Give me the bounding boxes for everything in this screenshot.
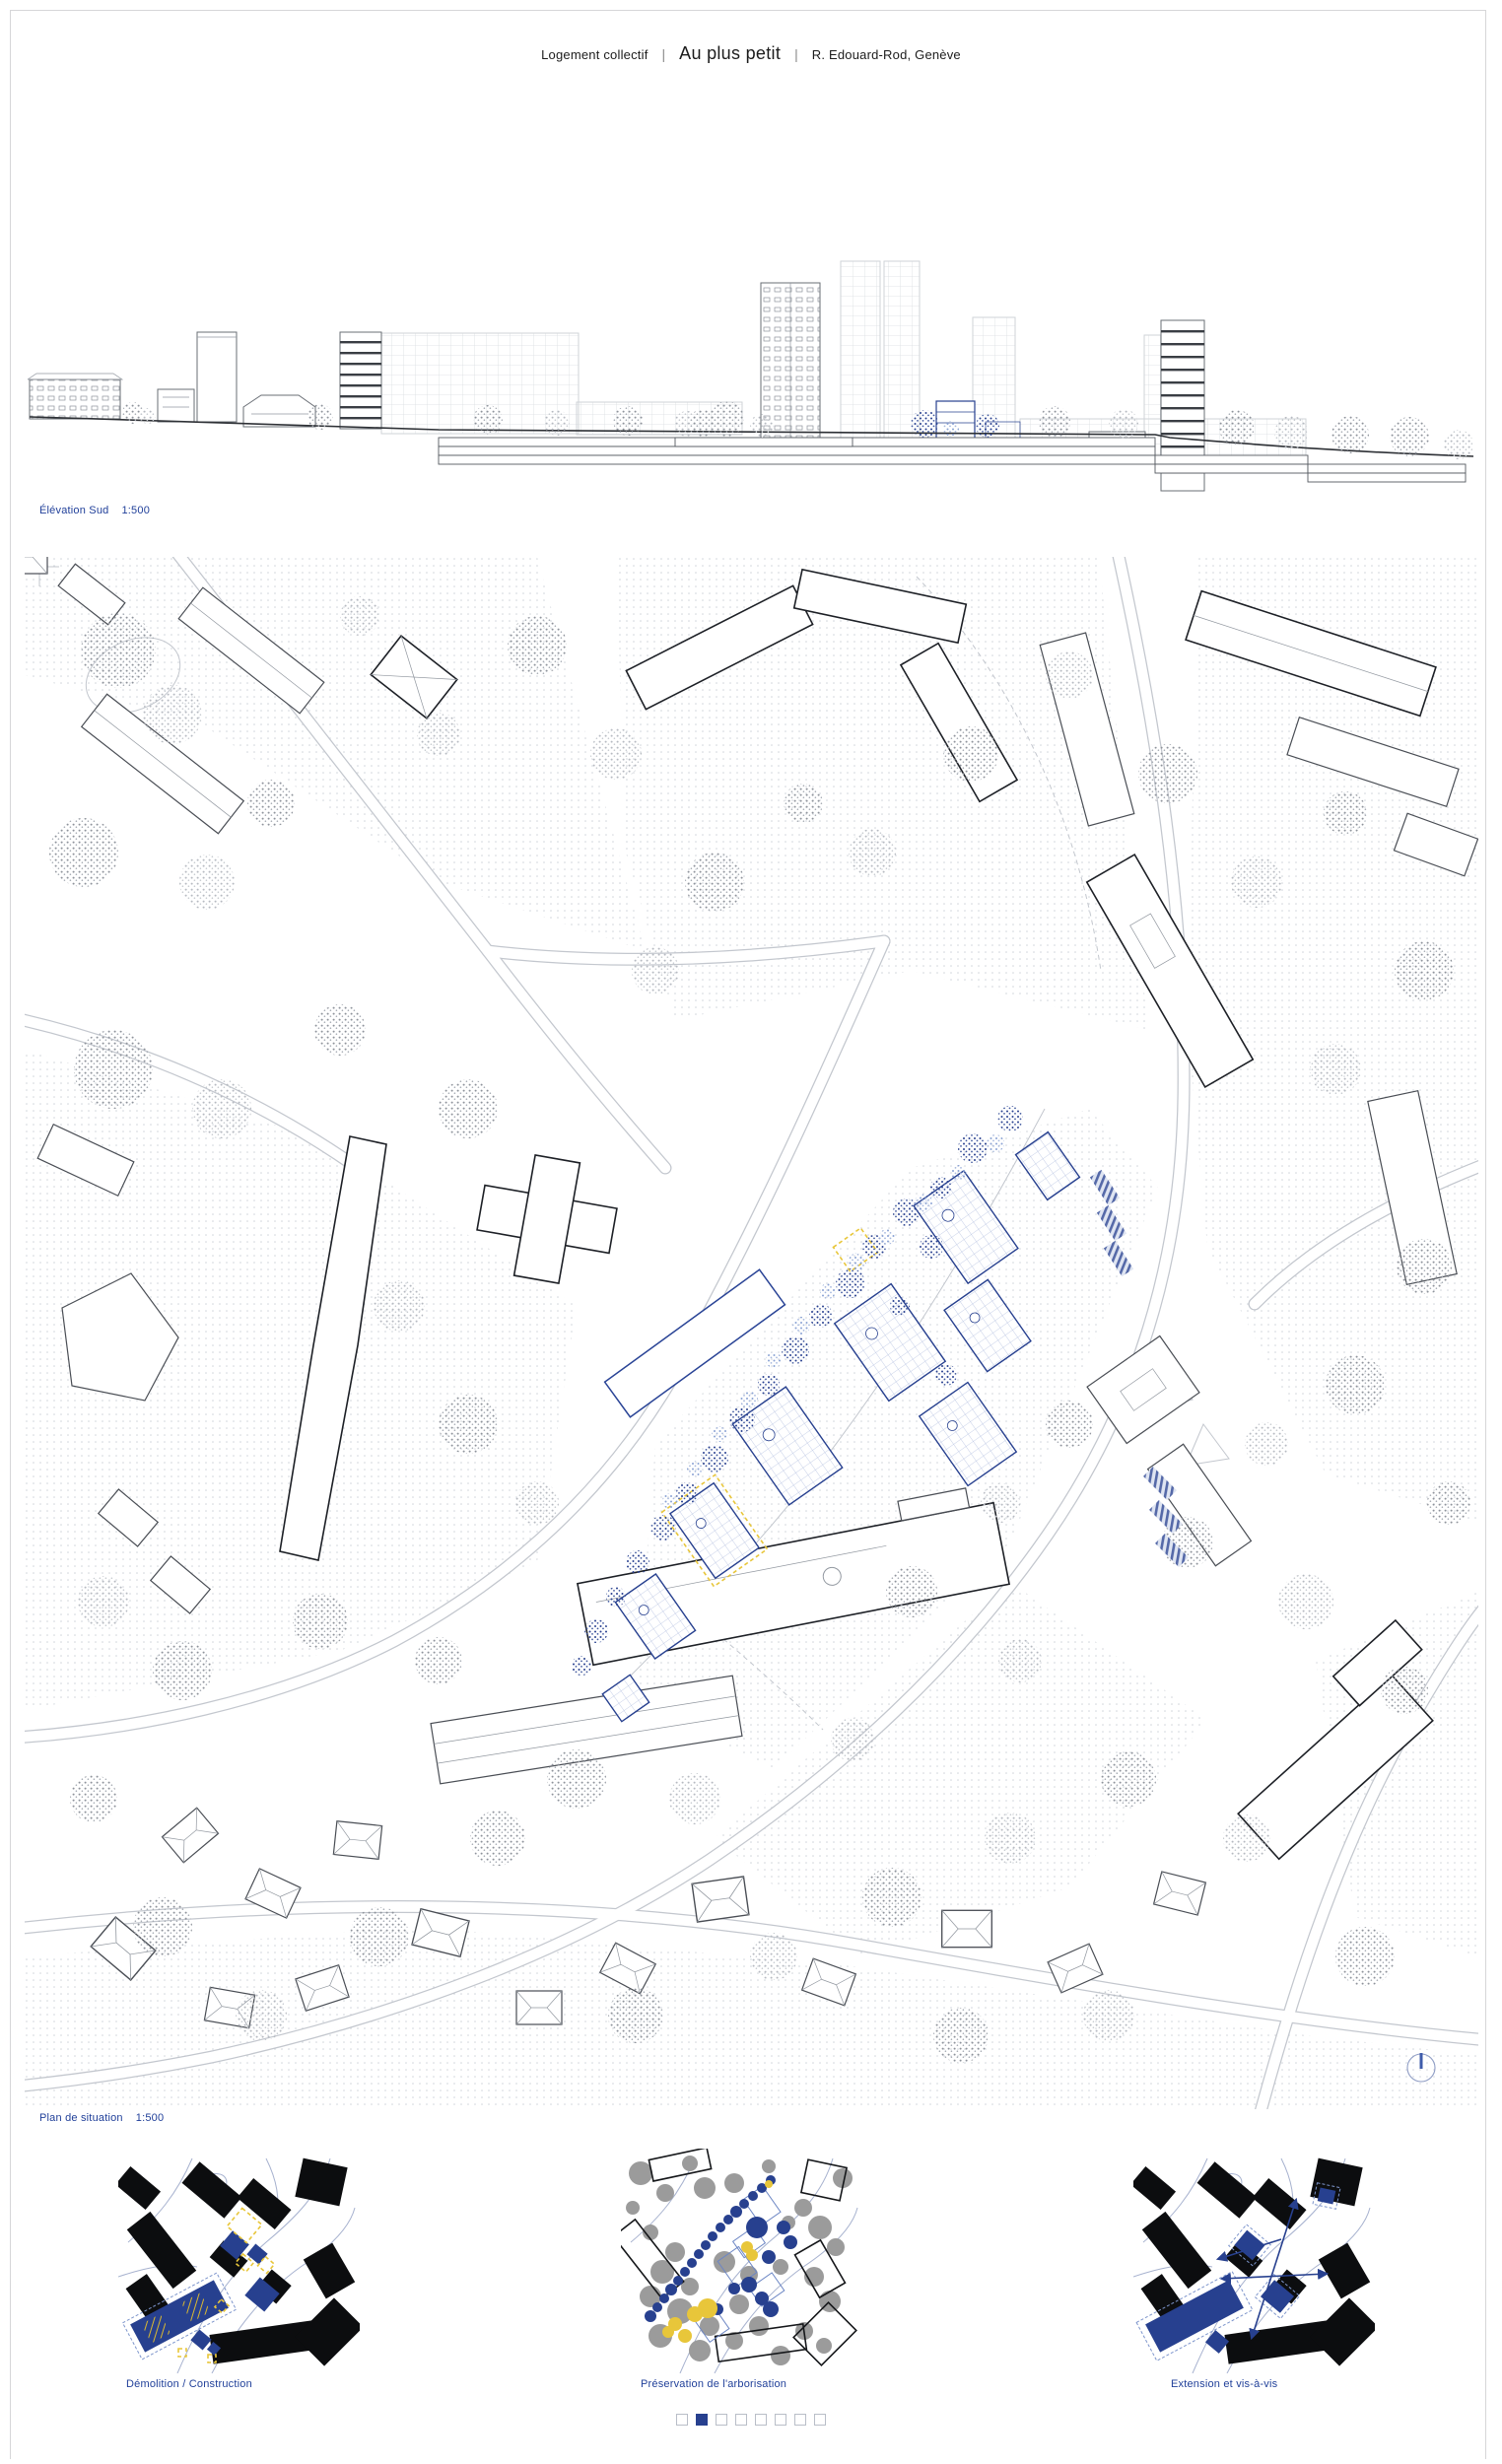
diagram-tree-preservation <box>621 2149 862 2373</box>
title-separator: | <box>794 46 798 62</box>
elevation-drawing <box>25 168 1478 498</box>
page-square-1[interactable] <box>676 2414 688 2426</box>
section-tower-left <box>340 332 381 429</box>
site-plan-label-text: Plan de situation <box>39 2112 123 2124</box>
diagram-demolition-construction <box>118 2149 360 2373</box>
page-square-7[interactable] <box>794 2414 806 2426</box>
site-plan-drawing <box>25 557 1478 2109</box>
elevation-label-text: Élévation Sud <box>39 505 108 516</box>
page-square-2[interactable] <box>696 2414 708 2426</box>
page-square-6[interactable] <box>775 2414 786 2426</box>
title-category: Logement collectif <box>541 47 648 62</box>
diagram3-label: Extension et vis-à-vis <box>1171 2378 1277 2390</box>
diagram1-label: Démolition / Construction <box>126 2378 252 2390</box>
diagram1-label-text: Démolition / Construction <box>126 2378 252 2390</box>
diagram2-existing-trees <box>626 2156 853 2365</box>
diagram3-visavis-arrows <box>1218 2200 1327 2338</box>
board-title: Logement collectif | Au plus petit | R. … <box>0 43 1502 64</box>
site-plan-label: Plan de situation1:500 <box>39 2112 164 2124</box>
site-plan-scale: 1:500 <box>136 2112 165 2124</box>
pagination <box>0 2414 1502 2426</box>
diagram3-label-text: Extension et vis-à-vis <box>1171 2378 1277 2390</box>
elevation-scale: 1:500 <box>121 505 150 516</box>
page-square-5[interactable] <box>755 2414 767 2426</box>
page-square-8[interactable] <box>814 2414 826 2426</box>
diagram-extension-visavis <box>1133 2149 1375 2373</box>
diagram2-label: Préservation de l'arborisation <box>641 2378 786 2390</box>
title-location: R. Edouard-Rod, Genève <box>812 47 961 62</box>
title-project: Au plus petit <box>679 43 781 64</box>
diagram2-label-text: Préservation de l'arborisation <box>641 2378 786 2390</box>
title-separator: | <box>662 46 666 62</box>
page-square-3[interactable] <box>716 2414 727 2426</box>
plan-ground-areas <box>25 557 1478 2109</box>
elevation-label: Élévation Sud1:500 <box>39 505 150 516</box>
page-square-4[interactable] <box>735 2414 747 2426</box>
